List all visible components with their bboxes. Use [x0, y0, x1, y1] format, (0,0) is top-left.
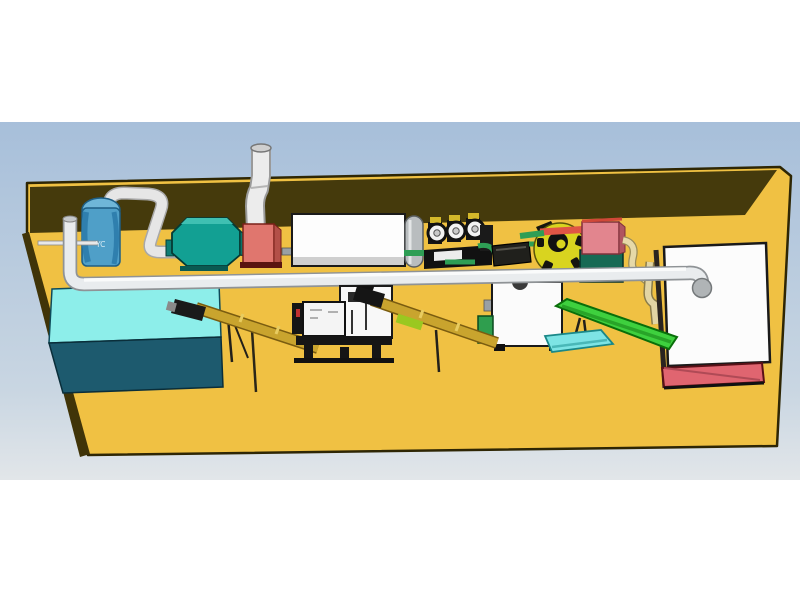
furnace-box	[243, 224, 274, 264]
water-tank-lower	[49, 337, 223, 393]
pipe-end-bulb	[693, 279, 712, 298]
furnace-box-group	[240, 224, 282, 268]
tank-label: YC	[95, 240, 105, 249]
blower-housing	[172, 218, 240, 266]
chimney-cap	[251, 144, 271, 152]
mill-motor-panel	[303, 302, 345, 336]
dryer-box-group	[282, 214, 438, 267]
scene-canvas: YC	[0, 0, 800, 600]
control-cabinet	[582, 222, 619, 254]
storage-bin	[664, 243, 770, 366]
drum-cylinder	[405, 216, 423, 267]
water-tank-group	[49, 283, 223, 393]
hopper-box	[492, 242, 531, 266]
